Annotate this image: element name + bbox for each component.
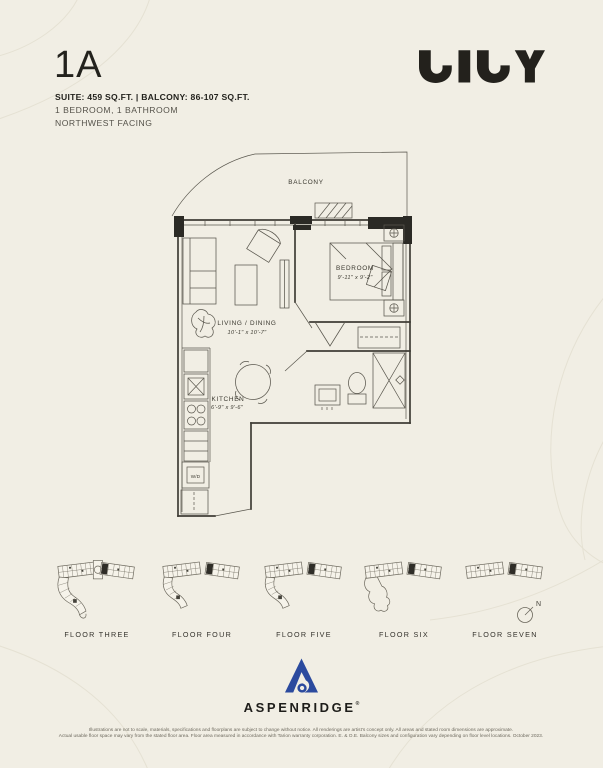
keyplan-floor-three: FLOOR THREE [51, 556, 143, 639]
rooms-line: 1 BEDROOM, 1 BATHROOM [55, 105, 178, 115]
bedroom-closet [315, 322, 400, 348]
keyplan-label: FLOOR SEVEN [459, 630, 551, 639]
main-floorplan: BALCONY [160, 140, 440, 540]
bedroom-furniture: BEDROOM 9'-11" x 9'-2" [330, 225, 404, 316]
svg-text:KITCHEN: KITCHEN [212, 396, 245, 403]
north-compass-icon: N [512, 597, 546, 627]
svg-text:9'-11" x 9'-2": 9'-11" x 9'-2" [337, 275, 373, 281]
unit-code: 1A [54, 44, 102, 87]
svg-text:BALCONY: BALCONY [288, 179, 323, 186]
bathroom-fixtures [315, 353, 405, 410]
svg-text:LIVING / DINING: LIVING / DINING [217, 320, 276, 327]
svg-text:W/D: W/D [191, 474, 201, 479]
disclaimer-text: Illustrations are not to scale, material… [51, 728, 551, 741]
keyplan-label: FLOOR FOUR [156, 630, 248, 639]
registered-mark: ® [356, 701, 360, 707]
keyplan-floor-four: FLOOR FOUR [156, 556, 248, 639]
balcony-outline: BALCONY [172, 152, 407, 218]
svg-text:BEDROOM: BEDROOM [336, 265, 374, 272]
svg-text:6'-9" x 9'-6": 6'-9" x 9'-6" [211, 405, 244, 411]
aspenridge-logo-icon [284, 657, 319, 697]
keyplan-label: FLOOR FIVE [258, 630, 350, 639]
facing-line: NORTHWEST FACING [55, 118, 152, 128]
svg-text:N: N [536, 601, 541, 608]
aspenridge-wordmark: ASPENRIDGE® [0, 700, 603, 715]
svg-text:10'-1" x 10'-7": 10'-1" x 10'-7" [228, 330, 268, 336]
keyplan-label: FLOOR SIX [358, 630, 450, 639]
keyplan-label: FLOOR THREE [51, 630, 143, 639]
keyplan-floor-six: FLOOR SIX [358, 556, 450, 639]
floorplan-sheet: 1A SUITE: 459 SQ.FT. | BALCONY: 86-107 S… [0, 0, 603, 768]
lily-logo [419, 50, 545, 84]
kitchen-fixtures: W/D KITCHEN 6'-9" x 9'-6" [181, 348, 271, 514]
suite-stats: SUITE: 459 SQ.FT. | BALCONY: 86-107 SQ.F… [55, 92, 250, 102]
living-room-furniture: LIVING / DINING 10'-1" x 10'-7" [183, 225, 311, 337]
keyplan-floor-five: FLOOR FIVE [258, 556, 350, 639]
